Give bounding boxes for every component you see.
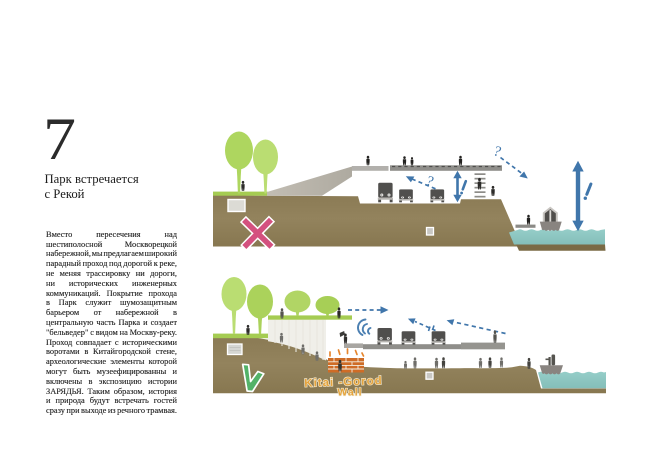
svg-text:Wall: Wall bbox=[337, 387, 362, 399]
